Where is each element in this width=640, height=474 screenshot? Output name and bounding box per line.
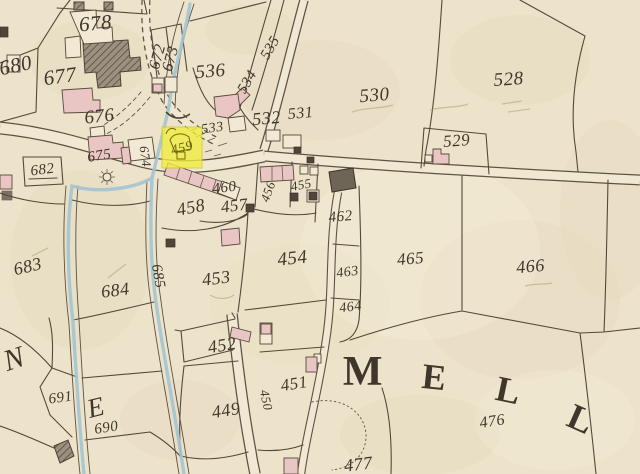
parcel-label-477: 477 xyxy=(343,452,374,474)
parcel-label-532: 532 xyxy=(251,107,281,129)
building-outline xyxy=(65,36,81,58)
parcel-label-460: 460 xyxy=(212,179,238,198)
parcel-label-531: 531 xyxy=(287,104,314,123)
parcel-label-465: 465 xyxy=(396,248,425,269)
parcel-label-466: 466 xyxy=(515,255,545,277)
placename-letter-m: M xyxy=(343,349,383,395)
building-outline-529 xyxy=(425,155,432,162)
parcel-label-677: 677 xyxy=(42,62,79,90)
building-pink-bottom xyxy=(284,458,298,474)
building-dark-small xyxy=(290,193,298,201)
map-canvas[interactable]: 6786806776766726735365355345305285295335… xyxy=(0,0,640,474)
parcel-label-464: 464 xyxy=(338,299,362,317)
building-pink-674 xyxy=(121,147,131,164)
building-dark-462 xyxy=(329,168,356,192)
building-dark-small xyxy=(294,147,301,153)
parcel-label-682: 682 xyxy=(30,161,56,180)
building-dark-small xyxy=(309,192,317,200)
parcel-label-691: 691 xyxy=(48,389,74,408)
building-pink-small xyxy=(261,324,271,334)
parcel-label-536: 536 xyxy=(195,60,227,84)
placename-letter-e: E xyxy=(420,356,449,398)
building-pink-453 xyxy=(221,228,240,246)
parcel-label-453: 453 xyxy=(201,266,232,289)
building-outline-small xyxy=(300,166,308,174)
building-outline-junction xyxy=(228,116,246,132)
building-pink-451 xyxy=(306,357,317,372)
building-hatched-small xyxy=(104,2,113,10)
building-dark-small xyxy=(166,239,175,247)
parcel-label-529: 529 xyxy=(442,130,470,151)
building-hatched-small xyxy=(74,2,84,10)
building-gray-edge xyxy=(2,191,12,200)
windmill-icon xyxy=(99,169,115,185)
building-outline-673 xyxy=(165,77,177,92)
parcel-label-684: 684 xyxy=(100,278,131,301)
parcel-label-678: 678 xyxy=(78,10,113,37)
building-pink-edge xyxy=(0,175,12,189)
parcel-label-530: 530 xyxy=(359,84,391,108)
building-outline xyxy=(283,135,301,148)
parcel-label-528: 528 xyxy=(493,68,524,91)
map-viewport[interactable]: 6786806776766726735365355345305285295335… xyxy=(0,0,640,474)
parcel-label-457: 457 xyxy=(220,194,250,216)
building-pink-small xyxy=(153,84,162,92)
building-dark-small xyxy=(307,157,314,163)
parcel-label-454: 454 xyxy=(276,247,308,271)
building-dark-edge xyxy=(0,27,8,37)
parcel-label-533: 533 xyxy=(200,120,224,138)
parcel-label-462: 462 xyxy=(328,208,353,226)
parcel-label-676: 676 xyxy=(83,105,115,129)
building-outline xyxy=(266,130,280,141)
parcel-label-674: 674 xyxy=(137,145,155,168)
building-outline-small xyxy=(310,167,318,175)
parcel-label-463: 463 xyxy=(335,264,359,282)
